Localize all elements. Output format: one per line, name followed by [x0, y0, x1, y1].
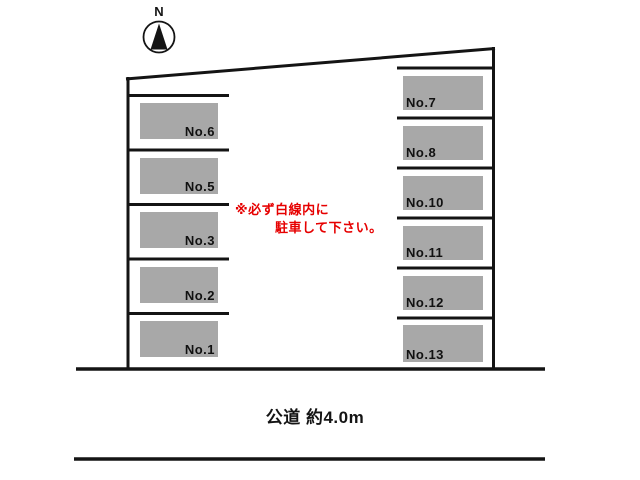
parking-space-no6: No.6 [140, 103, 218, 139]
parking-space-no1: No.1 [140, 321, 218, 357]
parking-space-label: No.11 [406, 245, 443, 260]
parking-space-label: No.5 [185, 179, 215, 194]
parking-space-no12: No.12 [403, 276, 483, 310]
parking-space-no11: No.11 [403, 226, 483, 260]
parking-space-no7: No.7 [403, 76, 483, 110]
parking-space-no10: No.10 [403, 176, 483, 210]
parking-notice-line1: ※必ず白線内に [235, 201, 383, 219]
road-label: 公道 約4.0m [240, 403, 390, 428]
parking-space-no5: No.5 [140, 158, 218, 194]
parking-space-label: No.6 [185, 124, 215, 139]
parking-space-no2: No.2 [140, 267, 218, 303]
parking-space-label: No.7 [406, 95, 436, 110]
parking-lot-diagram: N No.6 No.5 No.3 No.2 [0, 0, 640, 480]
parking-notice-line2: 駐車して下さい。 [275, 219, 383, 237]
parking-space-label: No.13 [406, 347, 444, 362]
parking-space-no13: No.13 [403, 325, 483, 362]
parking-space-label: No.2 [185, 288, 215, 303]
parking-space-label: No.8 [406, 145, 436, 160]
parking-space-label: No.12 [406, 295, 444, 310]
parking-notice: ※必ず白線内に 駐車して下さい。 [235, 201, 383, 237]
parking-space-no3: No.3 [140, 212, 218, 248]
parking-space-label: No.10 [406, 195, 444, 210]
lot-top-slanted-edge [126, 49, 495, 80]
parking-space-no8: No.8 [403, 126, 483, 160]
parking-space-label: No.1 [185, 342, 215, 357]
parking-space-label: No.3 [185, 233, 215, 248]
